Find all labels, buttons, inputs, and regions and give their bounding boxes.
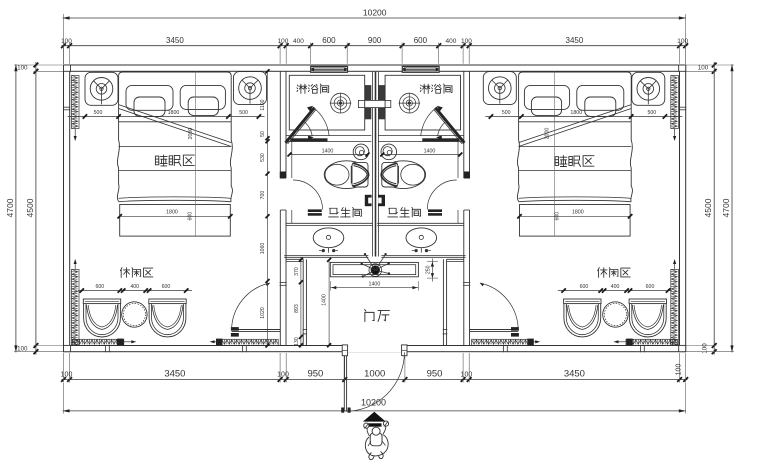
svg-text:900: 900 xyxy=(368,36,382,45)
svg-text:100: 100 xyxy=(698,65,709,72)
svg-text:400: 400 xyxy=(293,38,304,45)
svg-text:600: 600 xyxy=(95,284,104,290)
svg-text:1000: 1000 xyxy=(364,369,385,380)
svg-text:370: 370 xyxy=(294,267,300,276)
svg-text:500: 500 xyxy=(502,110,511,116)
svg-text:100: 100 xyxy=(278,38,289,45)
svg-text:600: 600 xyxy=(580,284,589,290)
svg-text:3450: 3450 xyxy=(564,369,585,380)
svg-text:100: 100 xyxy=(17,346,28,353)
svg-text:1400: 1400 xyxy=(322,294,328,306)
svg-text:530: 530 xyxy=(260,153,266,162)
svg-text:1020: 1020 xyxy=(260,307,266,319)
svg-text:1060: 1060 xyxy=(260,243,266,255)
svg-text:100: 100 xyxy=(702,343,709,354)
svg-text:600: 600 xyxy=(555,212,561,221)
svg-text:950: 950 xyxy=(427,369,443,380)
svg-text:1800: 1800 xyxy=(168,110,180,116)
svg-text:4500: 4500 xyxy=(25,198,35,217)
svg-text:3450: 3450 xyxy=(164,369,185,380)
svg-text:100: 100 xyxy=(277,372,289,379)
svg-text:100: 100 xyxy=(461,38,472,45)
svg-text:4500: 4500 xyxy=(703,198,713,217)
svg-text:130: 130 xyxy=(294,337,300,346)
svg-text:893: 893 xyxy=(294,304,300,313)
svg-text:100: 100 xyxy=(461,372,473,379)
svg-text:500: 500 xyxy=(94,110,103,116)
svg-text:4700: 4700 xyxy=(5,198,15,217)
svg-text:400: 400 xyxy=(445,38,456,45)
svg-text:1800: 1800 xyxy=(166,210,178,216)
svg-text:4700: 4700 xyxy=(721,198,731,217)
svg-text:100: 100 xyxy=(61,38,72,45)
svg-text:600: 600 xyxy=(414,36,428,45)
svg-text:100: 100 xyxy=(61,372,73,379)
svg-text:400: 400 xyxy=(130,284,139,290)
svg-text:500: 500 xyxy=(647,110,656,116)
svg-text:2000: 2000 xyxy=(545,128,551,140)
svg-text:600: 600 xyxy=(162,284,171,290)
svg-text:600: 600 xyxy=(187,212,193,221)
svg-text:400: 400 xyxy=(611,284,620,290)
svg-text:700: 700 xyxy=(260,191,266,200)
svg-text:1400: 1400 xyxy=(322,148,334,154)
svg-text:3450: 3450 xyxy=(566,36,584,45)
svg-text:600: 600 xyxy=(322,36,336,45)
svg-text:100: 100 xyxy=(17,65,28,72)
svg-text:250: 250 xyxy=(426,265,432,274)
svg-text:1800: 1800 xyxy=(572,210,584,216)
svg-text:100: 100 xyxy=(676,364,683,376)
svg-text:100: 100 xyxy=(677,38,688,45)
svg-text:1800: 1800 xyxy=(570,110,582,116)
svg-text:1400: 1400 xyxy=(369,281,381,287)
svg-text:950: 950 xyxy=(307,369,323,380)
svg-text:1100: 1100 xyxy=(260,99,266,110)
svg-text:1400: 1400 xyxy=(424,148,436,154)
svg-text:500: 500 xyxy=(239,110,248,116)
svg-text:2000: 2000 xyxy=(188,128,194,140)
svg-text:50: 50 xyxy=(260,131,266,137)
svg-text:600: 600 xyxy=(646,284,655,290)
svg-text:3450: 3450 xyxy=(166,36,184,45)
svg-text:10200: 10200 xyxy=(363,8,387,18)
